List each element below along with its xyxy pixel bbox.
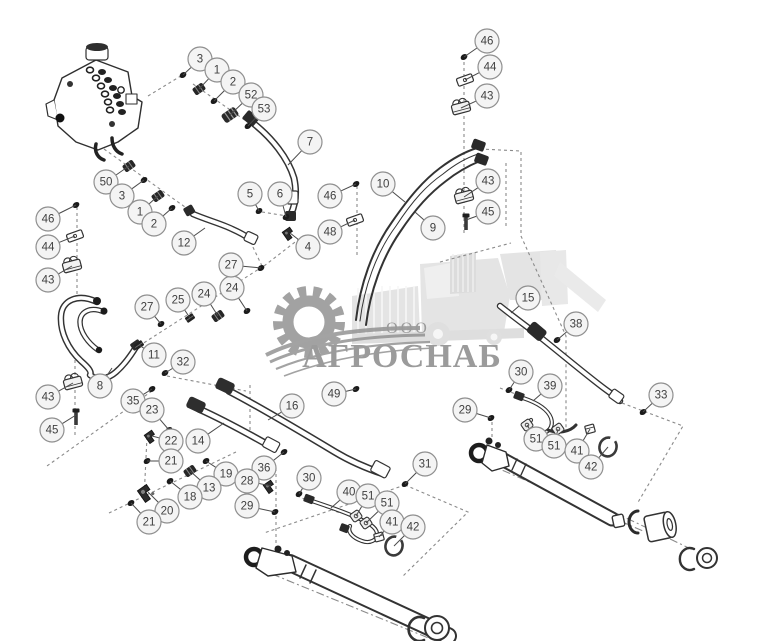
callout-11[interactable]: 11 (142, 343, 166, 367)
callout-24[interactable]: 24 (220, 276, 244, 300)
svg-text:16: 16 (286, 401, 299, 413)
callout-43[interactable]: 43 (36, 385, 60, 409)
svg-text:1: 1 (214, 65, 220, 77)
svg-text:7: 7 (307, 137, 313, 149)
leader-line (259, 509, 275, 512)
callout-45[interactable]: 45 (40, 418, 64, 442)
svg-text:14: 14 (192, 436, 205, 448)
leader-line (643, 403, 652, 412)
callout-23[interactable]: 23 (140, 398, 164, 422)
svg-text:51: 51 (362, 491, 375, 503)
exploded-parts-diagram: ООО АГРОСНАБ (0, 0, 781, 641)
callout-46[interactable]: 46 (318, 184, 342, 208)
callout-48[interactable]: 48 (318, 220, 342, 244)
callout-43[interactable]: 43 (475, 84, 499, 108)
svg-text:44: 44 (484, 62, 497, 74)
svg-text:53: 53 (258, 104, 271, 116)
callout-29[interactable]: 29 (453, 398, 477, 422)
leader-line (476, 414, 491, 418)
callout-29[interactable]: 29 (235, 494, 259, 518)
callout-33[interactable]: 33 (649, 383, 673, 407)
leader-line (170, 481, 181, 490)
leader-line (511, 306, 519, 313)
callout-42[interactable]: 42 (579, 455, 603, 479)
callout-44[interactable]: 44 (478, 55, 502, 79)
svg-text:5: 5 (247, 189, 253, 201)
svg-text:43: 43 (42, 275, 55, 287)
svg-text:45: 45 (46, 425, 59, 437)
leader-line (288, 151, 302, 165)
svg-text:24: 24 (198, 289, 211, 301)
callout-15[interactable]: 15 (516, 286, 540, 310)
svg-text:46: 46 (42, 214, 55, 226)
callout-5[interactable]: 5 (238, 182, 262, 206)
tube-assembly-8-11 (61, 297, 142, 379)
part-elbowlg-icon (137, 484, 155, 503)
svg-text:22: 22 (165, 436, 178, 448)
svg-text:29: 29 (241, 501, 254, 513)
svg-text:11: 11 (148, 350, 160, 362)
callout-27[interactable]: 27 (135, 295, 159, 319)
watermark-company-type: ООО (386, 320, 430, 337)
leader-line (273, 452, 284, 461)
svg-text:25: 25 (172, 295, 185, 307)
svg-text:48: 48 (324, 227, 337, 239)
svg-text:46: 46 (481, 36, 494, 48)
leader-line (214, 90, 225, 101)
svg-text:28: 28 (241, 476, 254, 488)
svg-text:50: 50 (100, 177, 113, 189)
callout-24[interactable]: 24 (192, 282, 216, 306)
svg-text:10: 10 (377, 179, 390, 191)
callout-21[interactable]: 21 (137, 510, 161, 534)
leader-line (239, 298, 247, 311)
callout-45[interactable]: 45 (476, 200, 500, 224)
leader-line (206, 461, 216, 467)
svg-text:36: 36 (258, 463, 271, 475)
svg-text:30: 30 (303, 473, 316, 485)
control-valve-assembly (46, 43, 142, 160)
svg-text:43: 43 (481, 91, 494, 103)
callout-39[interactable]: 39 (538, 374, 562, 398)
svg-text:8: 8 (97, 381, 103, 393)
svg-text:38: 38 (570, 319, 583, 331)
svg-text:31: 31 (419, 459, 432, 471)
svg-text:3: 3 (197, 54, 203, 66)
svg-text:21: 21 (143, 517, 156, 529)
svg-text:40: 40 (343, 487, 356, 499)
callout-38[interactable]: 38 (564, 312, 588, 336)
callout-25[interactable]: 25 (166, 288, 190, 312)
svg-text:2: 2 (151, 219, 157, 231)
svg-text:21: 21 (165, 456, 178, 468)
callout-30[interactable]: 30 (297, 466, 321, 490)
svg-text:52: 52 (245, 90, 258, 102)
callout-53[interactable]: 53 (252, 97, 276, 121)
svg-text:45: 45 (482, 207, 495, 219)
leader-line (405, 472, 417, 484)
svg-text:20: 20 (161, 506, 174, 518)
callout-46[interactable]: 46 (475, 29, 499, 53)
svg-text:18: 18 (184, 492, 197, 504)
leader-line (152, 436, 159, 438)
svg-text:12: 12 (178, 238, 191, 250)
svg-text:23: 23 (146, 405, 159, 417)
callout-2[interactable]: 2 (142, 212, 166, 236)
hydraulic-cylinder-lower (246, 546, 449, 641)
svg-text:39: 39 (544, 381, 557, 393)
leader-line (160, 419, 169, 430)
leader-line (341, 184, 356, 191)
watermark-logo: ООО АГРОСНАБ (266, 250, 606, 376)
callout-42[interactable]: 42 (401, 515, 425, 539)
callout-44[interactable]: 44 (36, 235, 60, 259)
callout-16[interactable]: 16 (280, 394, 304, 418)
svg-text:30: 30 (515, 367, 528, 379)
leader-line (415, 212, 424, 220)
svg-text:33: 33 (655, 390, 668, 402)
callout-10[interactable]: 10 (371, 172, 395, 196)
callout-46[interactable]: 46 (36, 207, 60, 231)
leader-line (163, 208, 172, 216)
callout-30[interactable]: 30 (509, 360, 533, 384)
svg-text:1: 1 (137, 207, 143, 219)
svg-text:41: 41 (386, 517, 399, 529)
leader-line (132, 180, 144, 189)
callout-18[interactable]: 18 (178, 485, 202, 509)
leader-line (155, 316, 161, 324)
svg-text:13: 13 (203, 483, 216, 495)
svg-text:46: 46 (324, 191, 337, 203)
svg-text:51: 51 (530, 434, 543, 446)
callout-9[interactable]: 9 (421, 216, 445, 240)
callout-49[interactable]: 49 (322, 382, 346, 406)
part-elbow-icon (263, 480, 276, 493)
svg-text:51: 51 (381, 498, 394, 510)
callout-43[interactable]: 43 (36, 268, 60, 292)
svg-text:49: 49 (328, 389, 341, 401)
leader-line (194, 228, 205, 236)
leader-line (331, 500, 340, 508)
parts-diagram-page: ООО АГРОСНАБ (0, 0, 781, 641)
leader-line (183, 67, 191, 75)
callout-28[interactable]: 28 (235, 469, 259, 493)
hose-15 (500, 306, 625, 404)
svg-text:35: 35 (127, 396, 140, 408)
svg-text:29: 29 (459, 405, 472, 417)
part-elbow-icon (282, 227, 295, 240)
callout-6[interactable]: 6 (268, 182, 292, 206)
svg-text:42: 42 (407, 522, 420, 534)
callout-32[interactable]: 32 (171, 350, 195, 374)
leader-line (464, 48, 477, 57)
svg-text:27: 27 (141, 302, 154, 314)
svg-text:42: 42 (585, 462, 598, 474)
callout-27[interactable]: 27 (219, 253, 243, 277)
svg-text:51: 51 (548, 441, 561, 453)
watermark-company-name: АГРОСНАБ (302, 338, 502, 375)
callout-7[interactable]: 7 (298, 130, 322, 154)
leader-line (62, 415, 76, 424)
part-clamp-icon (450, 97, 471, 115)
leader-line (59, 205, 76, 214)
svg-text:2: 2 (230, 77, 236, 89)
callout-4[interactable]: 4 (296, 235, 320, 259)
svg-text:3: 3 (119, 191, 125, 203)
leader-line (208, 423, 224, 434)
svg-text:24: 24 (226, 283, 239, 295)
svg-text:43: 43 (482, 176, 495, 188)
svg-text:6: 6 (277, 189, 283, 201)
callout-21[interactable]: 21 (159, 449, 183, 473)
svg-text:9: 9 (430, 223, 436, 235)
leader-line (533, 394, 541, 401)
svg-text:41: 41 (571, 446, 584, 458)
callout-12[interactable]: 12 (172, 231, 196, 255)
svg-text:32: 32 (177, 357, 190, 369)
callout-14[interactable]: 14 (186, 429, 210, 453)
svg-text:19: 19 (220, 469, 233, 481)
callout-51[interactable]: 51 (542, 434, 566, 458)
svg-text:27: 27 (225, 260, 238, 272)
callout-8[interactable]: 8 (88, 374, 112, 398)
callout-31[interactable]: 31 (413, 452, 437, 476)
leader-line (392, 192, 405, 202)
callout-43[interactable]: 43 (476, 169, 500, 193)
svg-text:44: 44 (42, 242, 55, 254)
callout-41[interactable]: 41 (380, 510, 404, 534)
svg-text:15: 15 (522, 293, 535, 305)
svg-text:43: 43 (42, 392, 55, 404)
svg-text:4: 4 (305, 242, 312, 254)
leader-line (131, 503, 141, 513)
part-bolt-icon (463, 214, 470, 231)
